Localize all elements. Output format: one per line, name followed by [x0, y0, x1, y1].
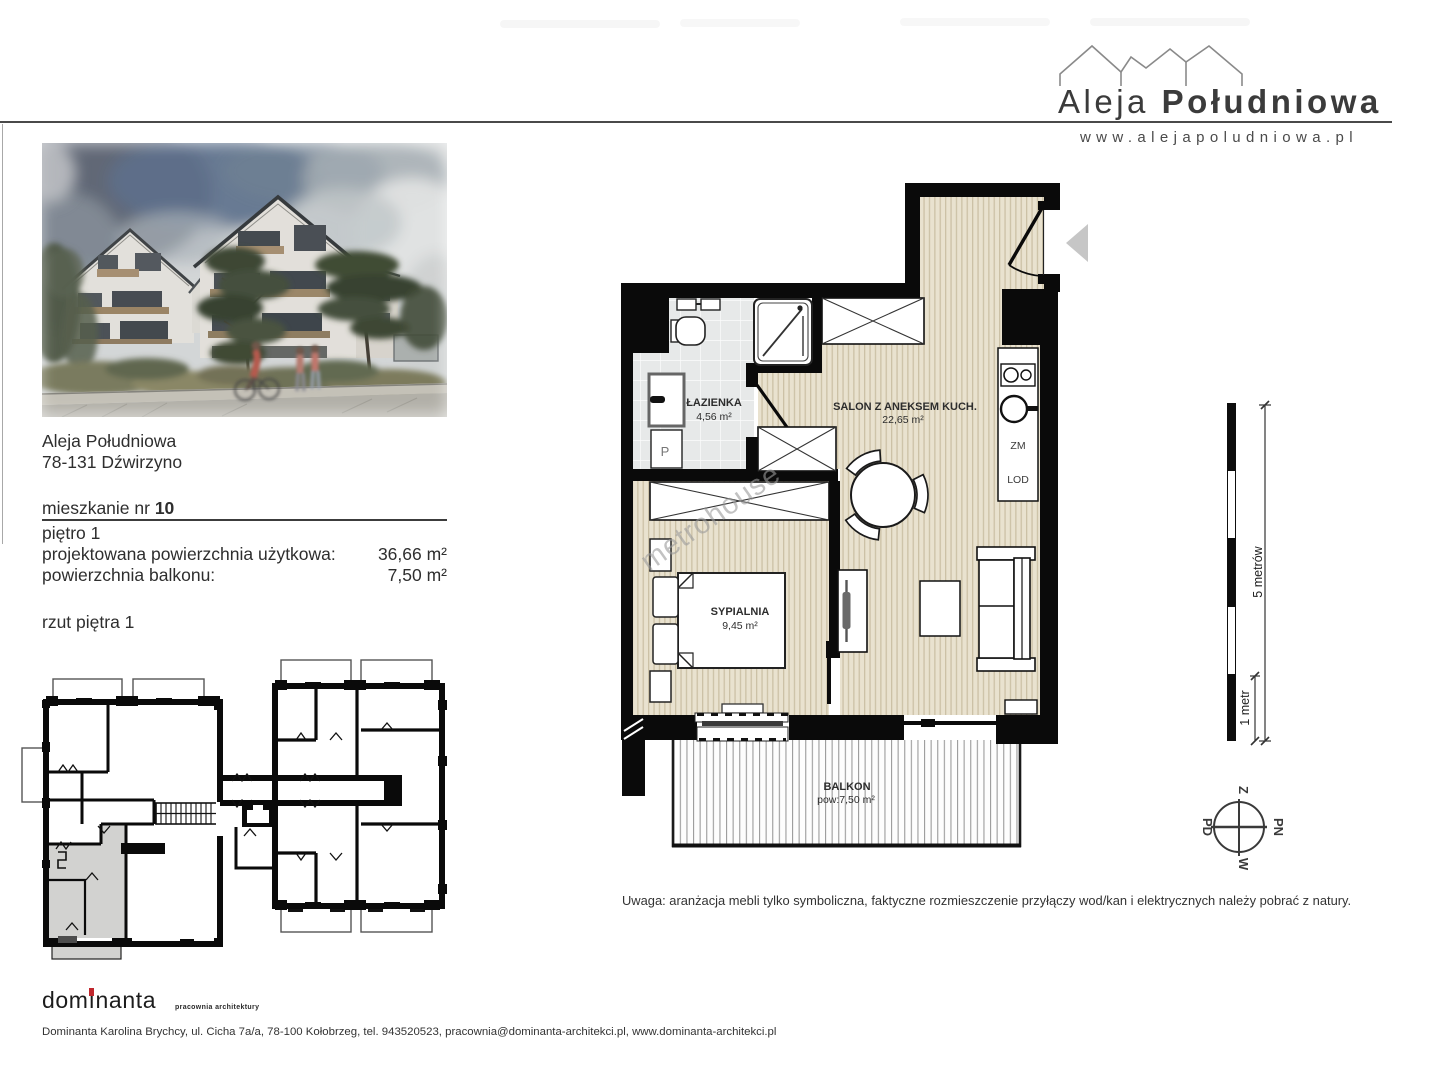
- svg-text:4,56 m²: 4,56 m²: [696, 411, 732, 423]
- svg-text:pow:7,50 m²: pow:7,50 m²: [817, 794, 875, 806]
- svg-text:SYPIALNIA: SYPIALNIA: [711, 606, 770, 618]
- svg-text:W: W: [1236, 858, 1251, 871]
- svg-text:P: P: [661, 444, 670, 459]
- svg-text:9,45 m²: 9,45 m²: [722, 620, 758, 632]
- svg-text:LOD: LOD: [1007, 474, 1029, 486]
- svg-text:SALON Z ANEKSEM KUCH.: SALON Z ANEKSEM KUCH.: [833, 401, 977, 413]
- svg-text:Z: Z: [1236, 786, 1251, 794]
- svg-text:BALKON: BALKON: [823, 781, 870, 793]
- svg-text:PD: PD: [1200, 818, 1215, 836]
- svg-text:PN: PN: [1271, 818, 1286, 836]
- svg-text:5 metrów: 5 metrów: [1251, 545, 1265, 597]
- svg-text:ZM: ZM: [1010, 440, 1025, 452]
- svg-text:1 metr: 1 metr: [1238, 690, 1252, 725]
- svg-text:ŁAZIENKA: ŁAZIENKA: [686, 397, 742, 409]
- svg-text:22,65 m²: 22,65 m²: [882, 414, 924, 426]
